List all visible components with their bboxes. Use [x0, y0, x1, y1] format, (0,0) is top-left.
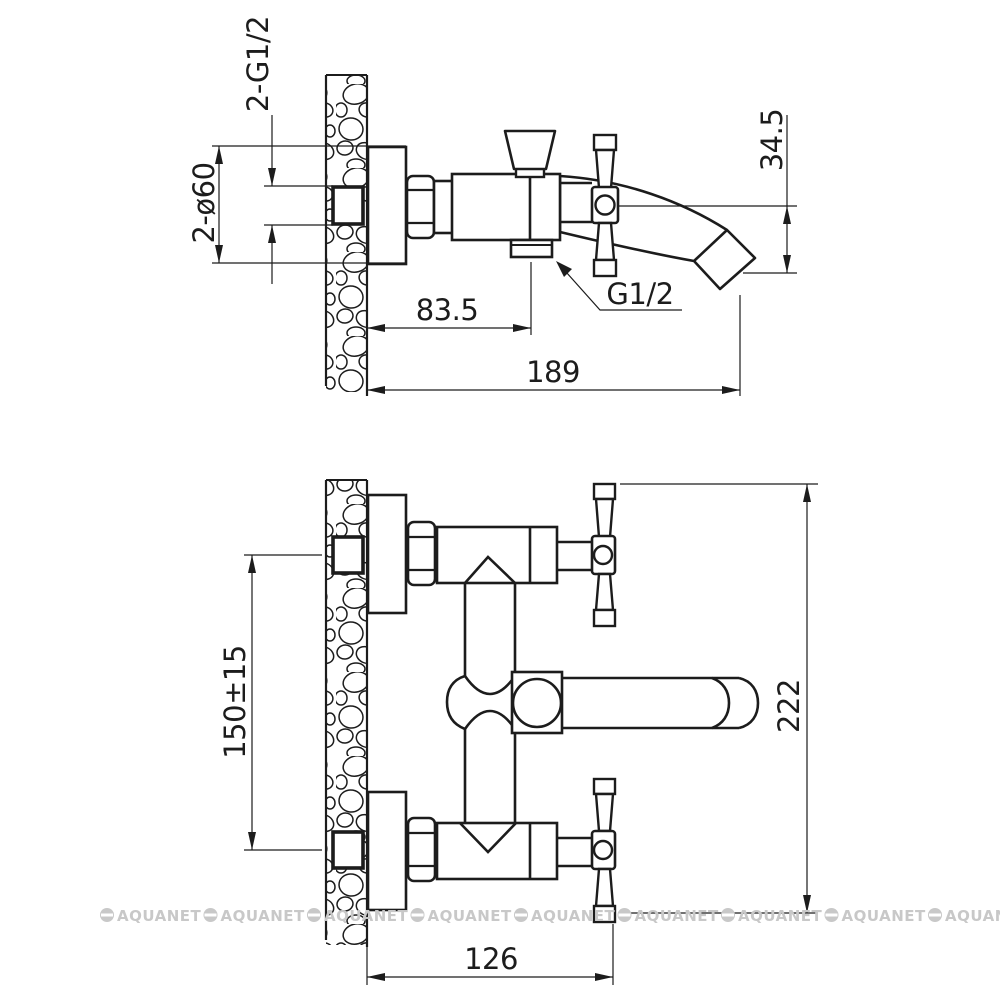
dim-wall-to-outlet-label: 83.5: [416, 293, 479, 327]
dim-outlet-thread-label: G1/2: [606, 277, 673, 311]
aquanet-logo-icon: [204, 908, 218, 922]
aquanet-logo-icon: [411, 908, 425, 922]
watermark-item: AQUANET: [514, 907, 615, 925]
valve-body-side: [434, 174, 560, 240]
watermark-text: AQUANET: [531, 907, 615, 925]
watermark-item: AQUANET: [100, 907, 201, 925]
aquanet-logo-icon: [100, 908, 114, 922]
dim-flange-diameter-label: 2-ø60: [187, 162, 221, 243]
wall-flange-top: [368, 495, 406, 613]
watermark-text: AQUANET: [738, 907, 822, 925]
inlet-pipe-top: [333, 537, 363, 573]
watermark-item: AQUANET: [721, 907, 822, 925]
wall-section-side: [326, 75, 367, 396]
watermark-text: AQUANET: [428, 907, 512, 925]
aquanet-logo-icon: [825, 908, 839, 922]
faucet-dimension-drawing: 2-G1/2 2-ø60 34.5 83.5 189 G1/2: [0, 0, 1000, 1000]
inlet-pipe-bottom: [333, 832, 363, 868]
dim-overall-height-label: 222: [772, 679, 806, 733]
aquanet-logo-icon: [721, 908, 735, 922]
watermark-text: AQUANET: [221, 907, 305, 925]
technical-drawing-svg: 2-G1/2 2-ø60 34.5 83.5 189 G1/2: [0, 0, 1000, 1000]
aquanet-logo-icon: [307, 908, 321, 922]
hex-nut-bottom: [408, 818, 435, 881]
aquanet-logo-icon: [618, 908, 632, 922]
cross-handle-top-front: [592, 484, 615, 626]
watermark-item: AQUANET: [204, 907, 305, 925]
spout-side: [560, 176, 755, 289]
hex-nut-top: [408, 522, 435, 585]
cross-handle-bottom-front: [592, 779, 615, 922]
watermark-row: AQUANET AQUANET AQUANET AQUANET AQUANET …: [100, 907, 1000, 925]
wall-flange-bottom: [368, 792, 406, 910]
wall-flange-side: [368, 147, 406, 264]
watermark-item: AQUANET: [411, 907, 512, 925]
dim-inlet-spacing-label: 150±15: [218, 645, 252, 759]
watermark-text: AQUANET: [842, 907, 926, 925]
watermark-item: AQUANET: [928, 907, 1000, 925]
watermark-text: AQUANET: [117, 907, 201, 925]
watermark-item: AQUANET: [618, 907, 719, 925]
watermark-item: AQUANET: [825, 907, 926, 925]
dim-wall-to-handle-label: 126: [464, 942, 518, 976]
inlet-pipe-side: [333, 187, 363, 224]
aquanet-logo-icon: [928, 908, 942, 922]
shower-outlet-nipple: [511, 240, 552, 257]
dim-inlet-threads-label: 2-G1/2: [241, 16, 275, 112]
aquanet-logo-icon: [514, 908, 528, 922]
watermark-text: AQUANET: [324, 907, 408, 925]
riser-pipe: [447, 583, 515, 823]
spout-front: [562, 678, 758, 728]
dim-spout-drop-label: 34.5: [755, 109, 789, 172]
valve-body-bottom-front: [437, 823, 592, 879]
watermark-text: AQUANET: [635, 907, 719, 925]
watermark-item: AQUANET: [307, 907, 408, 925]
valve-body-top-front: [437, 527, 592, 583]
watermark-text: AQUANET: [945, 907, 1000, 925]
side-view: 2-G1/2 2-ø60 34.5 83.5 189 G1/2: [187, 16, 797, 396]
hex-nut-side: [407, 176, 434, 238]
diverter-knob: [505, 131, 555, 177]
spout-hub-front: [512, 672, 562, 733]
dim-total-reach-label: 189: [526, 355, 580, 389]
